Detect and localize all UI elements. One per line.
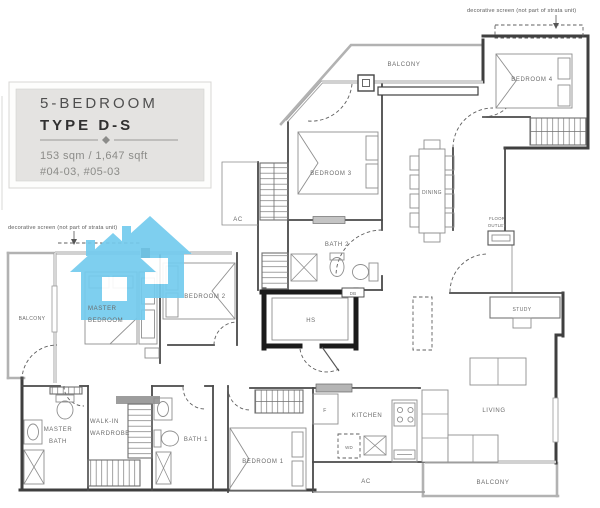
label-dining: DINING	[422, 190, 442, 196]
label-balcony-left: BALCONY	[19, 316, 46, 322]
kitchen-fixtures	[313, 384, 418, 462]
title-block: 5-BEDROOM TYPE D-S 153 sqm / 1,647 sqft …	[9, 82, 211, 188]
label-master-bath-1: MASTER	[44, 427, 73, 433]
label-balcony-bottom: BALCONY	[477, 480, 510, 486]
unit-type-bedrooms: 5-BEDROOM	[40, 95, 158, 112]
label-living: LIVING	[482, 408, 505, 414]
label-ac-bottom: AC	[361, 479, 371, 485]
label-ac-side: AC	[233, 217, 243, 223]
label-walkin-1: WALK-IN	[90, 419, 119, 425]
label-washer-dryer: WD	[345, 445, 353, 450]
label-bath1: BATH 1	[184, 437, 208, 443]
master-bath-fixtures	[24, 387, 82, 484]
label-decorative-screen-top: decorative screen (not part of strata un…	[467, 8, 576, 14]
unit-type-code: TYPE D-S	[40, 117, 133, 134]
label-db: DB	[350, 291, 357, 296]
floor-outlet-symbol	[488, 231, 514, 245]
label-master-bedroom-2: BEDROOM	[88, 318, 123, 324]
label-fridge: F	[323, 408, 326, 414]
label-floor-outlet-1: FLOOR	[489, 216, 505, 221]
label-bedroom1: BEDROOM 1	[242, 459, 283, 465]
unit-numbers: #04-03, #05-03	[40, 166, 120, 178]
label-bedroom2: BEDROOM 2	[184, 294, 225, 300]
label-master-bath-2: BATH	[49, 439, 67, 445]
floor-plan-drawing: 5-BEDROOM TYPE D-S 153 sqm / 1,647 sqft …	[0, 0, 600, 508]
walkin-wardrobe-fixtures	[88, 396, 160, 486]
label-study: STUDY	[513, 307, 532, 313]
label-master-bedroom-1: MASTER	[88, 306, 117, 312]
label-floor-outlet-2: OUTLET	[488, 223, 507, 228]
bedroom1-furniture	[230, 390, 306, 490]
balcony-column	[358, 75, 478, 95]
label-hs: HS	[306, 318, 316, 324]
floor-plan-page: 5-BEDROOM TYPE D-S 153 sqm / 1,647 sqft …	[0, 0, 600, 508]
label-balcony-top: BALCONY	[388, 62, 421, 68]
label-bath2: BATH 2	[325, 242, 349, 248]
unit-area: 153 sqm / 1,647 sqft	[40, 150, 148, 162]
label-kitchen: KITCHEN	[352, 413, 383, 419]
bedroom4-furniture	[496, 54, 586, 145]
label-bedroom3: BEDROOM 3	[310, 171, 351, 177]
label-bedroom4: BEDROOM 4	[511, 77, 552, 83]
label-decorative-screen-left: decorative screen (not part of strata un…	[8, 225, 117, 231]
living-furniture	[422, 358, 526, 462]
bath1-fixtures	[154, 398, 179, 484]
label-walkin-2: WARDROBE	[90, 431, 130, 437]
